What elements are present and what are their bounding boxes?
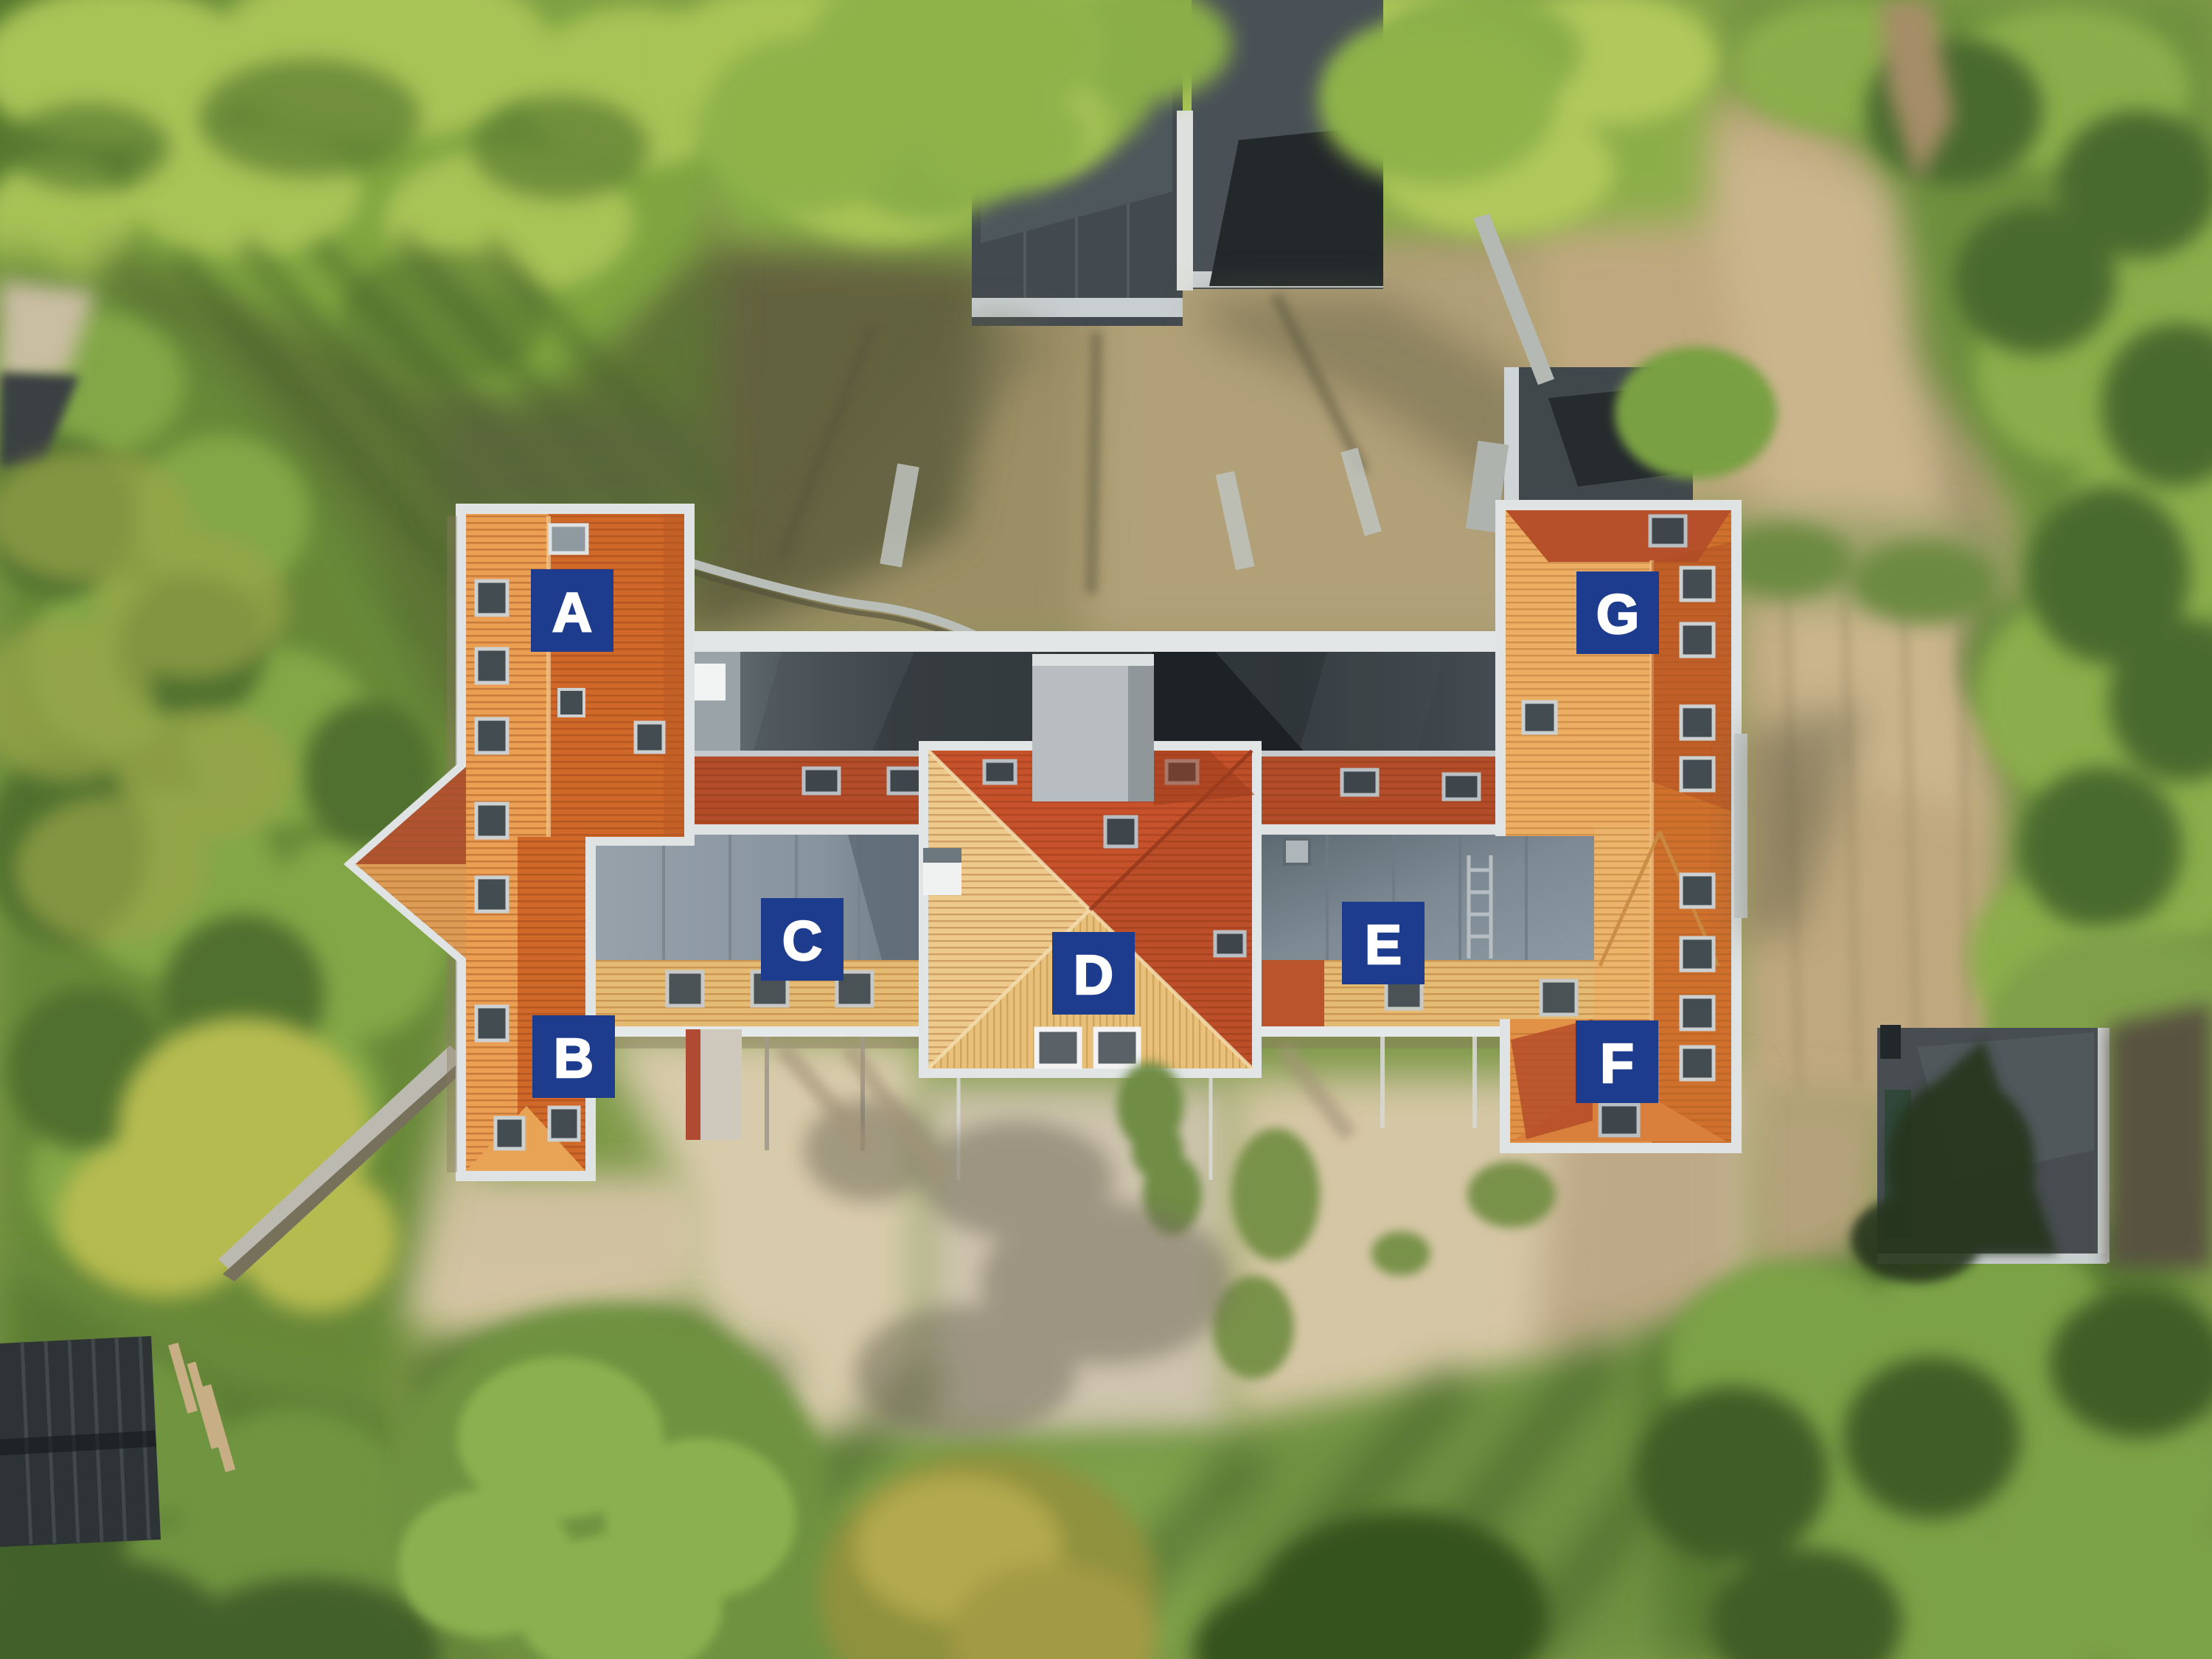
svg-text:B: B (554, 1027, 594, 1089)
svg-text:A: A (552, 581, 592, 643)
svg-text:C: C (782, 910, 822, 972)
svg-text:E: E (1365, 914, 1402, 975)
svg-text:G: G (1596, 583, 1639, 645)
svg-text:D: D (1074, 944, 1113, 1006)
svg-text:F: F (1600, 1032, 1634, 1094)
